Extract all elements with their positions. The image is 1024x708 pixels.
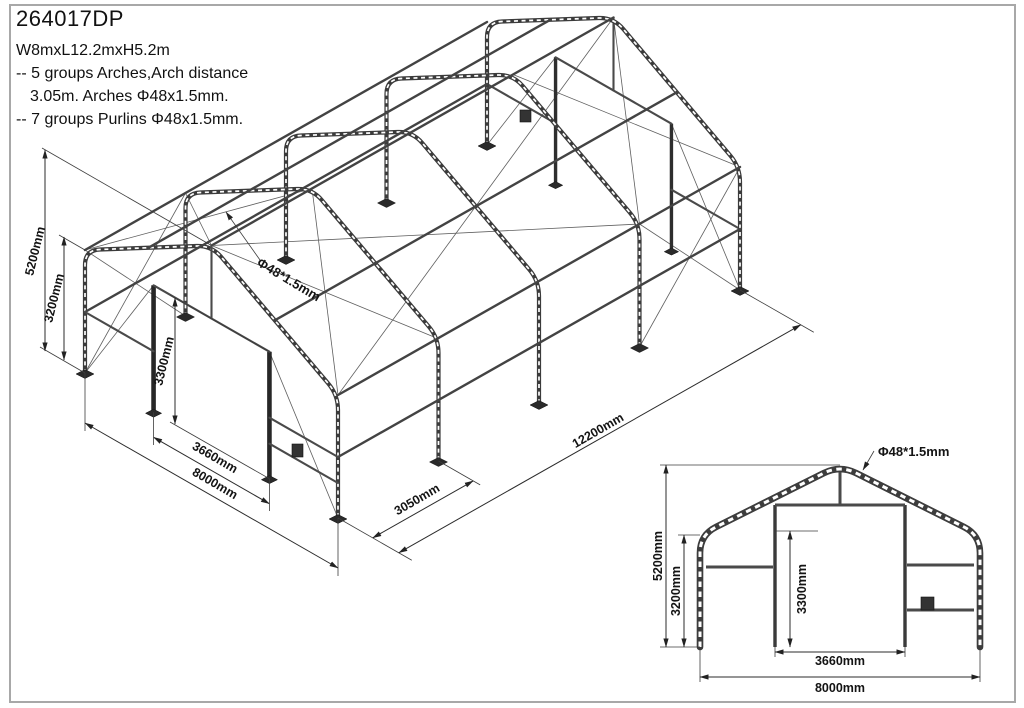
front-dim-total-width: 8000mm xyxy=(815,681,865,695)
front-elevation-view xyxy=(660,451,980,682)
iso-dim-total-height: 5200mm xyxy=(22,225,48,277)
title-block: 264017DP W8mxL12.2mxH5.2m -- 5 groups Ar… xyxy=(16,6,248,131)
overall-size: W8mxL12.2mxH5.2m xyxy=(16,39,248,62)
front-dim-eave-height: 3200mm xyxy=(669,566,683,616)
drawing-sheet: 5200mm 3200mm 3300mm 3660mm 8000mm 3050m… xyxy=(0,0,1024,708)
front-dim-total-height: 5200mm xyxy=(651,531,665,581)
front-dim-door-width: 3660mm xyxy=(815,654,865,668)
spec-line-arches: -- 5 groups Arches,Arch distance xyxy=(16,62,248,85)
front-tube-spec-label: Φ48*1.5mm xyxy=(878,444,949,459)
spec-line-arch-tube: 3.05m. Arches Φ48x1.5mm. xyxy=(16,85,248,108)
spec-line-purlins: -- 7 groups Purlins Φ48x1.5mm. xyxy=(16,108,248,131)
front-dim-door-height: 3300mm xyxy=(795,564,809,614)
drawing-number: 264017DP xyxy=(16,6,248,32)
iso-dim-total-length: 12200mm xyxy=(570,410,626,451)
